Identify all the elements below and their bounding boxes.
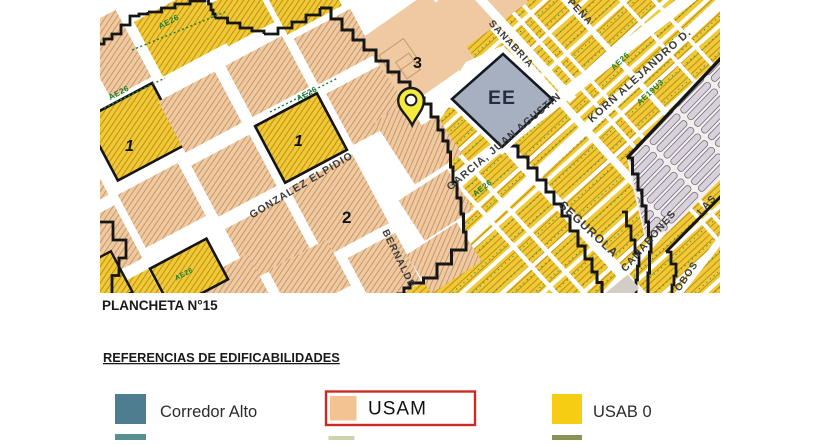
svg-text:2: 2 <box>342 208 351 227</box>
svg-text:USAB 0: USAB 0 <box>593 403 652 421</box>
svg-text:3: 3 <box>413 55 422 72</box>
svg-text:PLANCHETA N°15: PLANCHETA N°15 <box>102 298 218 313</box>
svg-text:Corredor Alto: Corredor Alto <box>160 403 257 421</box>
svg-text:1: 1 <box>294 133 303 150</box>
svg-text:1: 1 <box>125 138 134 155</box>
svg-text:REFERENCIAS DE EDIFICABILIDADE: REFERENCIAS DE EDIFICABILIDADES <box>103 350 340 365</box>
svg-text:USAM: USAM <box>368 399 427 420</box>
svg-text:EE: EE <box>488 87 516 109</box>
